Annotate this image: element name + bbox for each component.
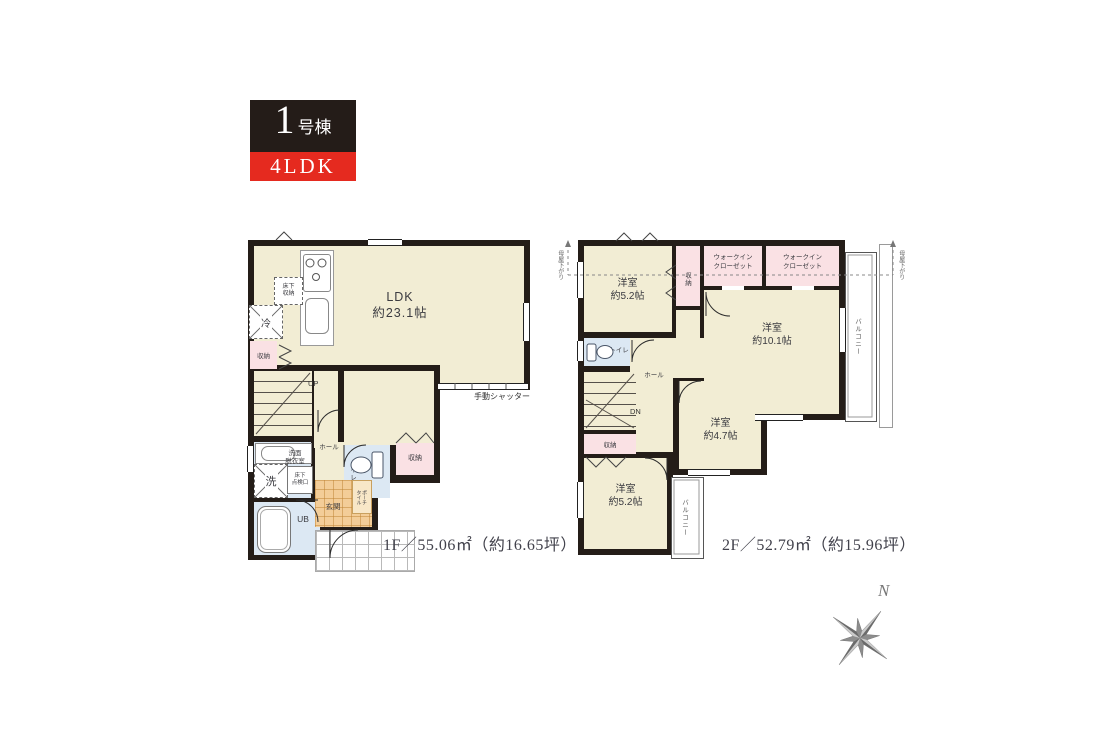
f2-roof-eave-east (879, 244, 893, 428)
layout-type-badge: 4LDK (250, 152, 356, 181)
f2-wic-right-label: ウォークイン クローゼット (767, 254, 838, 272)
f2-window-east (839, 308, 846, 352)
f1-stairs (254, 371, 312, 436)
f1-closet-left: 収納 (250, 341, 277, 369)
f2-hall-label: ホール (638, 372, 670, 380)
f1-dining-nook (344, 371, 434, 445)
f1-kitchen-sink (305, 298, 329, 334)
f2-window-mid-south (688, 469, 730, 476)
f1-underfloor-storage: 床下 収納 (274, 277, 303, 305)
f2-wic-left-label: ウォークイン クローゼット (703, 254, 763, 272)
f1-shutter-label: 手動シャッター (450, 392, 554, 402)
unit-number-badge: 1 号棟 (250, 100, 356, 152)
f1-ub-label: UB (290, 514, 316, 525)
floorplan-page: 1 号棟 4LDK 床下 収納 冷 収納 洗 床下 点検口 LDK 約23.1帖… (0, 0, 1100, 733)
f2-window-toilet (577, 341, 584, 361)
f2-balcony-east (845, 252, 877, 422)
compass-north-text: N (877, 581, 891, 600)
f1-washer-label: 洗 (265, 473, 278, 489)
f1-stove (303, 254, 331, 292)
f2-balcony-east-label: バルコニー (852, 305, 860, 369)
f2-roof-slope-right-label: 母屋下がり (896, 240, 904, 290)
f1-porch-tile-label: ポーチ タイル (355, 482, 366, 512)
f1-entry-label: 玄関 (318, 502, 348, 512)
f1-window-right (523, 303, 530, 341)
f1-fridge: 冷 (249, 305, 283, 339)
f1-closet-hall-label: 収納 (398, 454, 432, 463)
f1-window-washroom (247, 446, 254, 472)
f2-bedroom-mid-label: 洋室 約4.7帖 (668, 417, 773, 443)
f1-hall-label: ホール (314, 444, 344, 452)
f2-bedroom-east-label: 洋室 約10.1帖 (717, 322, 827, 348)
f1-up-label: UP (308, 379, 336, 389)
f1-ldk-label: LDK 約23.1帖 (345, 289, 455, 322)
unit-number-suffix: 号棟 (298, 113, 332, 138)
f1-washroom-label: 洗面 脱衣室 (278, 450, 312, 467)
plan-linework (0, 0, 1100, 733)
f2-bedroom-sw-label: 洋室 約5.2帖 (573, 483, 678, 509)
compass-icon: N (812, 578, 912, 683)
f2-roof-slope-left-label: 母屋下がり (555, 240, 563, 290)
f2-closet-strip-label: 収納 (682, 262, 690, 296)
f2-bedroom-nw-label: 洋室 約5.2帖 (575, 277, 680, 303)
f1-window-shutter (438, 383, 528, 390)
f2-stairs (584, 372, 636, 430)
f2-balcony-south-label: バルコニー (679, 487, 687, 549)
f1-underfloor-access: 床下 点検口 (287, 466, 313, 494)
f1-ldk-south (440, 365, 524, 383)
f2-wic-right-opening (792, 286, 814, 290)
f2-closet-sw: 収納 (584, 434, 636, 454)
f2-dn-label: DN (630, 407, 652, 417)
f1-washer: 洗 (254, 464, 288, 498)
f1-bathtub-inner (260, 509, 288, 550)
f2-wic-left-opening (722, 286, 744, 290)
f1-window-top (368, 239, 402, 246)
f2-area-text: 2F／52.79㎡（約15.96坪） (722, 531, 916, 555)
f1-area-text: 1F／55.06㎡（約16.65坪） (383, 531, 577, 555)
unit-number: 1 (275, 100, 295, 140)
f2-closet-approach (676, 310, 700, 338)
f2-toilet-label: トイレ (604, 347, 634, 355)
f1-fridge-label: 冷 (260, 315, 272, 330)
